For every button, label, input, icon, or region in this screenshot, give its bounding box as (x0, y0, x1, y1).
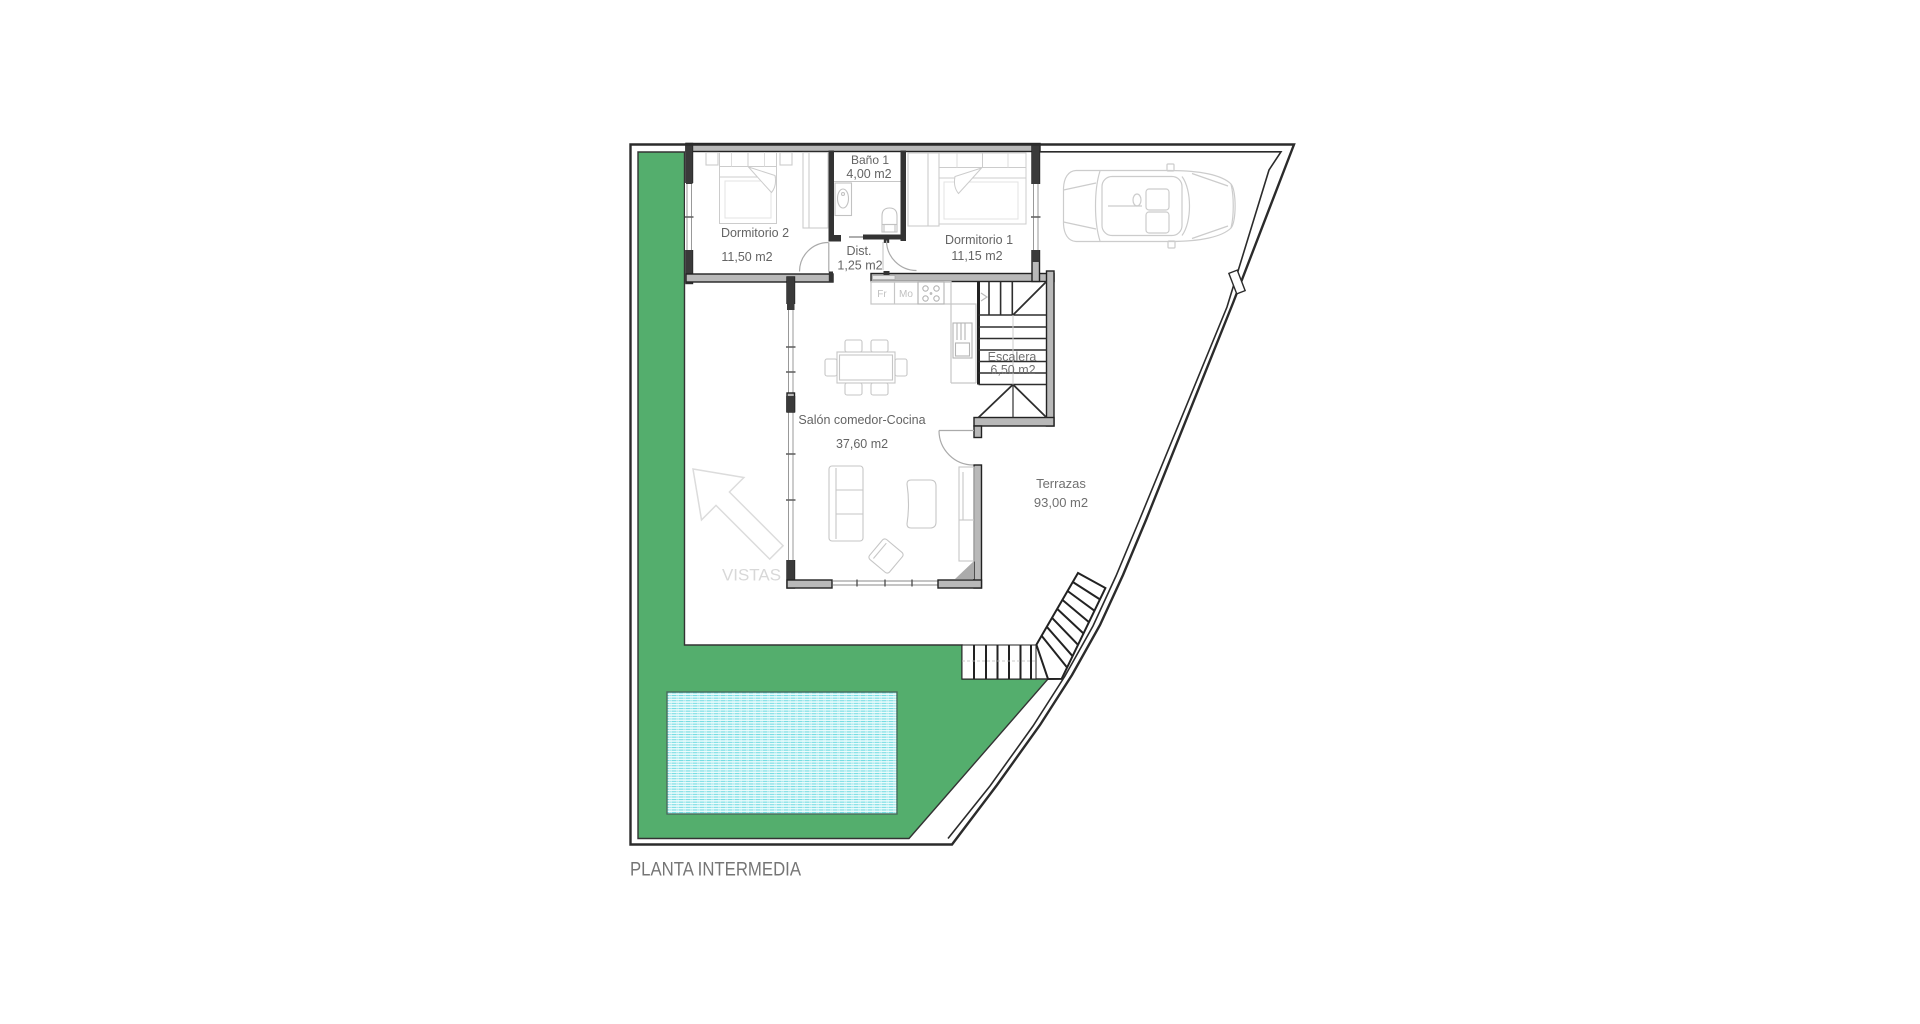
svg-text:4,00 m2: 4,00 m2 (846, 167, 891, 181)
svg-text:Escalera: Escalera (988, 350, 1037, 364)
svg-text:Dormitorio 2: Dormitorio 2 (721, 226, 789, 240)
svg-text:Dormitorio 1: Dormitorio 1 (945, 233, 1013, 247)
svg-text:Fr: Fr (877, 289, 887, 300)
svg-text:37,60 m2: 37,60 m2 (836, 437, 888, 451)
svg-text:Terrazas: Terrazas (1036, 476, 1086, 491)
svg-text:Salón comedor-Cocina: Salón comedor-Cocina (798, 413, 925, 427)
svg-text:PLANTA INTERMEDIA: PLANTA INTERMEDIA (630, 860, 801, 881)
svg-text:1,25 m2: 1,25 m2 (837, 259, 882, 273)
svg-text:11,15 m2: 11,15 m2 (951, 249, 1002, 263)
svg-text:VISTAS: VISTAS (722, 566, 781, 585)
svg-text:Mo: Mo (899, 289, 913, 300)
svg-text:93,00 m2: 93,00 m2 (1034, 495, 1088, 510)
svg-text:11,50 m2: 11,50 m2 (721, 250, 772, 264)
svg-text:Dist.: Dist. (847, 244, 872, 258)
svg-text:6,50 m2: 6,50 m2 (990, 363, 1035, 377)
svg-text:Baño 1: Baño 1 (851, 153, 889, 167)
